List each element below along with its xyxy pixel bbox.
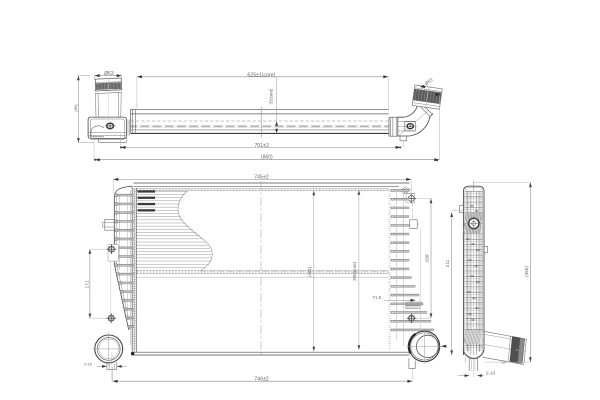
svg-text:2-10: 2-10	[486, 370, 496, 375]
svg-text:746±2: 746±2	[254, 377, 269, 383]
svg-text:171: 171	[84, 280, 90, 288]
svg-text:745±2: 745±2	[254, 174, 269, 180]
svg-text:(450): (450)	[524, 266, 529, 277]
svg-text:298: 298	[425, 254, 431, 262]
svg-text:398(core): 398(core)	[352, 261, 357, 281]
svg-text:(860): (860)	[261, 155, 273, 161]
svg-text:Ø63: Ø63	[104, 71, 114, 77]
svg-text:(401): (401)	[307, 266, 312, 277]
svg-text:701±2: 701±2	[255, 143, 270, 149]
svg-text:Ø63: Ø63	[424, 77, 434, 87]
svg-text:625±1(core): 625±1(core)	[247, 72, 275, 78]
svg-text:71.5: 71.5	[372, 295, 381, 300]
svg-text:32(core): 32(core)	[269, 88, 274, 105]
svg-text:(86): (86)	[73, 104, 78, 112]
svg-text:2-10: 2-10	[84, 362, 93, 367]
svg-text:211: 211	[445, 259, 451, 267]
